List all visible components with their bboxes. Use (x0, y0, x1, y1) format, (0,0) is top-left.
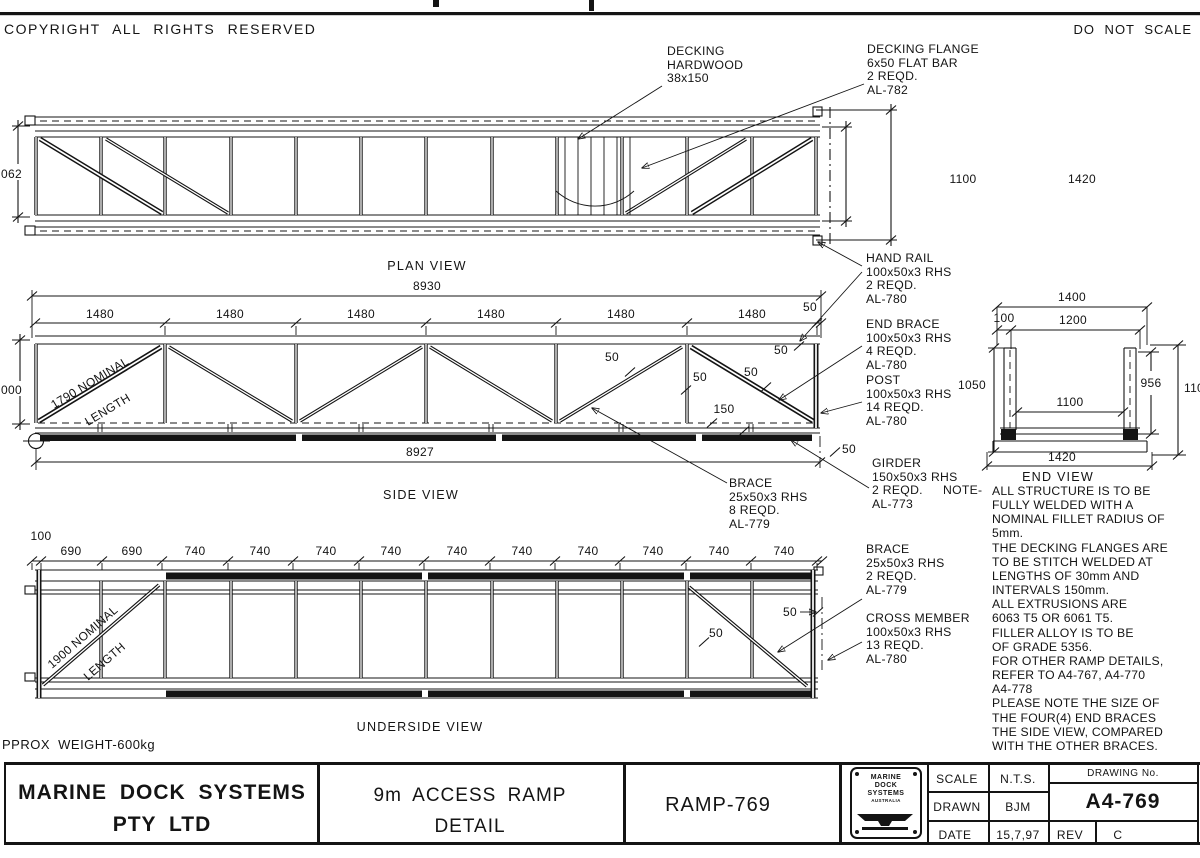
side-view-linework (23, 336, 820, 449)
side-dim-panel: 1480 (216, 307, 244, 321)
underside-view-title: UNDERSIDE VIEW (357, 720, 484, 734)
approx-weight-text: PPROX WEIGHT-600kg (2, 737, 155, 752)
divider (927, 765, 929, 842)
text-line: THE SIDE VIEW, COMPARED (992, 725, 1168, 739)
company-name-line2: PTY LTD (113, 813, 212, 837)
plan-dim-inner-height: 1100 (949, 172, 976, 186)
drawing-no-value: A4-769 (1086, 790, 1161, 814)
text-line: REFER TO A4-767, A4-770 (992, 668, 1168, 682)
brace-label: BRACE25x50x3 RHS2 REQD.AL-779 (866, 543, 945, 597)
text-line: INTERVALS 150mm. (992, 583, 1168, 597)
text-line: HARDWOOD (667, 59, 743, 73)
side-dim-50: 50 (842, 442, 856, 456)
cross-member-label: CROSS MEMBER100x50x3 RHS13 REQD.AL-780 (866, 612, 970, 666)
side-view-dimensions (0, 272, 869, 488)
text-line: AL-773 (872, 498, 958, 512)
text-line: 100x50x3 RHS (866, 388, 952, 402)
drawing-no-underline (1048, 782, 1197, 784)
text-line: OF GRADE 5356. (992, 640, 1168, 654)
under-dim-740: 740 (578, 544, 599, 558)
drawing-sheet: 1100 1420 062 PLAN VIEW (0, 0, 1200, 858)
underside-view-linework (25, 567, 823, 698)
hand-rail-label: HAND RAIL100x50x3 RHS2 REQD.AL-780 (866, 252, 952, 306)
text-line: GIRDER (872, 457, 958, 471)
text-line: 8 REQD. (729, 504, 808, 518)
text-line: DECKING (667, 45, 743, 59)
logo-text: MARINE (852, 774, 920, 781)
side-dim-panel: 1480 (607, 307, 635, 321)
end-view-title: END VIEW (1022, 470, 1094, 484)
decking-flange-label: DECKING FLANGE6x50 FLAT BAR2 REQD.AL-782 (867, 43, 979, 97)
text-line: HAND RAIL (866, 252, 952, 266)
side-view-title: SIDE VIEW (383, 488, 459, 502)
company-name-line1: MARINE DOCK SYSTEMS (18, 781, 306, 805)
side-dim-height-left: 000 (1, 383, 22, 397)
text-line: FULLY WELDED WITH A (992, 498, 1168, 512)
text-line: AL-780 (866, 653, 970, 667)
drawing-title-line1: 9m ACCESS RAMP (374, 785, 567, 807)
text-line: 150x50x3 RHS (872, 471, 958, 485)
end-dim-overall: 1400 (1058, 290, 1086, 304)
text-line: 2 REQD. (866, 570, 945, 584)
decking-label: DECKINGHARDWOOD38x150 (667, 45, 743, 86)
under-dim-690: 690 (61, 544, 82, 558)
logo-dock-icon (856, 806, 914, 832)
row-line (927, 791, 1048, 793)
plan-dim-overall-height: 1420 (1068, 172, 1096, 186)
under-dim-740: 740 (250, 544, 271, 558)
divider (317, 765, 320, 842)
side-dim-150: 150 (714, 402, 735, 416)
side-dim-panel: 1480 (86, 307, 114, 321)
text-line: FILLER ALLOY IS TO BE (992, 626, 1168, 640)
side-brace-label: BRACE25x50x3 RHS8 REQD.AL-779 (729, 477, 808, 531)
end-dim-height: 1050 (958, 378, 986, 392)
text-line: WITH THE OTHER BRACES. (992, 739, 1168, 753)
post-label: POST100x50x3 RHS14 REQD.AL-780 (866, 374, 952, 428)
scale-label: SCALE (936, 772, 978, 786)
date-value: 15,7,97 (996, 828, 1040, 842)
side-dim-overall-top: 8930 (413, 279, 441, 293)
text-line: 38x150 (667, 72, 743, 86)
under-dim-740: 740 (709, 544, 730, 558)
notes-list: ALL STRUCTURE IS TO BEFULLY WELDED WITH … (992, 484, 1168, 753)
sheet-border (0, 0, 1200, 15)
plan-view-linework (25, 107, 830, 245)
logo-text: AUSTRALIA (852, 798, 920, 803)
text-line: BRACE (729, 477, 808, 491)
note-heading: NOTE- (943, 484, 982, 498)
divider (1048, 765, 1050, 842)
under-dim-740: 740 (774, 544, 795, 558)
date-label: DATE (938, 828, 971, 842)
copyright-text: COPYRIGHT ALL RIGHTS RESERVED (4, 21, 316, 37)
text-line: 25x50x3 RHS (729, 491, 808, 505)
title-block: MARINE DOCK SYSTEMS PTY LTD 9m ACCESS RA… (4, 762, 1200, 845)
end-dim-post: 956 (1141, 376, 1162, 390)
text-line: 13 REQD. (866, 639, 970, 653)
side-dim-50: 50 (774, 343, 788, 357)
text-line: 6x50 FLAT BAR (867, 57, 979, 71)
divider (839, 765, 842, 842)
side-dim-overall-bottom: 8927 (406, 445, 434, 459)
text-line: 14 REQD. (866, 401, 952, 415)
text-line: END BRACE (866, 318, 952, 332)
drawing-no-label: DRAWING No. (1087, 768, 1159, 779)
text-line: AL-779 (866, 584, 945, 598)
end-dim-right: 110 (1184, 381, 1200, 395)
text-line: AL-782 (867, 84, 979, 98)
text-line: 4 REQD. (866, 345, 952, 359)
rev-value: C (1113, 828, 1122, 842)
drawn-label: DRAWN (933, 800, 980, 814)
side-dim-50: 50 (605, 350, 619, 364)
text-line: 100x50x3 RHS (866, 626, 970, 640)
end-dim-inner: 1100 (1056, 395, 1083, 409)
side-dim-panel: 1480 (477, 307, 505, 321)
text-line: 2 REQD. (867, 70, 979, 84)
end-dim-inner-top: 1200 (1059, 313, 1087, 327)
text-line: 5mm. (992, 526, 1168, 540)
divider (988, 765, 990, 842)
text-line: DECKING FLANGE (867, 43, 979, 57)
divider (623, 765, 626, 842)
under-dim-start: 100 (31, 529, 52, 543)
drawing-title-line2: DETAIL (434, 816, 505, 838)
text-line: FOR OTHER RAMP DETAILS, (992, 654, 1168, 668)
end-brace-label: END BRACE100x50x3 RHS4 REQD.AL-780 (866, 318, 952, 372)
ramp-number: RAMP-769 (665, 794, 771, 817)
under-dim-50: 50 (709, 626, 723, 640)
text-line: TO BE STITCH WELDED AT (992, 555, 1168, 569)
side-dim-panel: 1480 (738, 307, 766, 321)
end-dim-offset: 100 (994, 311, 1015, 325)
divider (1197, 765, 1199, 842)
under-dim-690: 690 (122, 544, 143, 558)
plan-view-title: PLAN VIEW (387, 259, 466, 273)
under-dim-740: 740 (447, 544, 468, 558)
text-line: 2 REQD. (866, 279, 952, 293)
drawn-value: BJM (1005, 800, 1031, 814)
text-line: THE DECKING FLANGES ARE (992, 541, 1168, 555)
do-not-scale-text: DO NOT SCALE (1073, 22, 1192, 37)
side-dim-50: 50 (693, 370, 707, 384)
under-dim-740: 740 (643, 544, 664, 558)
text-line: ALL STRUCTURE IS TO BE (992, 484, 1168, 498)
side-dim-panel: 1480 (347, 307, 375, 321)
text-line: AL-779 (729, 518, 808, 532)
logo-text: SYSTEMS (852, 790, 920, 797)
plan-view-dimensions (0, 84, 897, 266)
side-dim-end-offset: 50 (803, 300, 817, 314)
under-dim-740: 740 (381, 544, 402, 558)
rev-divider (1095, 820, 1097, 842)
text-line: CROSS MEMBER (866, 612, 970, 626)
mds-logo: MARINE DOCK SYSTEMS AUSTRALIA (850, 767, 922, 839)
text-line: THE FOUR(4) END BRACES (992, 711, 1168, 725)
side-dim-50: 50 (744, 365, 758, 379)
text-line: 6063 T5 OR 6061 T5. (992, 611, 1168, 625)
text-line: A4-778 (992, 682, 1168, 696)
text-line: LENGTHS OF 30mm AND (992, 569, 1168, 583)
text-line: 100x50x3 RHS (866, 332, 952, 346)
row-line (927, 820, 1199, 822)
logo-text: DOCK (852, 782, 920, 789)
rev-label: REV (1057, 828, 1083, 842)
text-line: 100x50x3 RHS (866, 266, 952, 280)
text-line: NOMINAL FILLET RADIUS OF (992, 512, 1168, 526)
text-line: PLEASE NOTE THE SIZE OF (992, 696, 1168, 710)
text-line: POST (866, 374, 952, 388)
text-line: AL-780 (866, 415, 952, 429)
text-line: BRACE (866, 543, 945, 557)
under-dim-740: 740 (316, 544, 337, 558)
text-line: 25x50x3 RHS (866, 557, 945, 571)
scale-value: N.T.S. (1000, 772, 1036, 786)
under-dim-740: 740 (185, 544, 206, 558)
text-line: AL-780 (866, 293, 952, 307)
plan-dim-fr-height: 062 (1, 167, 22, 181)
text-line: AL-780 (866, 359, 952, 373)
under-dim-740: 740 (512, 544, 533, 558)
end-dim-base: 1420 (1048, 450, 1076, 464)
text-line: ALL EXTRUSIONS ARE (992, 597, 1168, 611)
under-dim-50: 50 (783, 605, 797, 619)
